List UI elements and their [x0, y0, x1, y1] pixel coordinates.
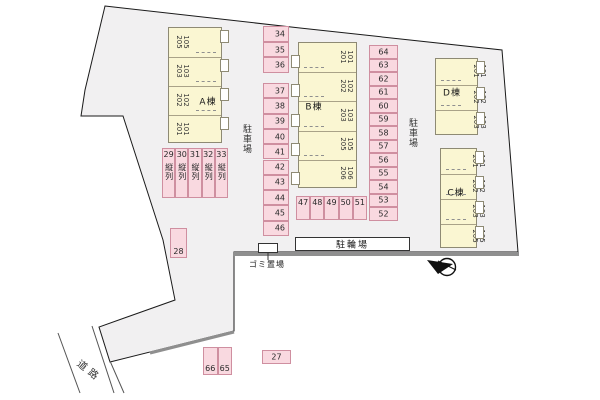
parking-stall-36: 36: [263, 57, 289, 73]
stair-dashes: [196, 52, 216, 53]
stall-number: 40: [275, 132, 285, 141]
tandem-parking-label: 縦列: [191, 163, 199, 181]
stall-number: 57: [378, 142, 388, 151]
balcony-notch: [291, 55, 300, 68]
stall-number: 46: [275, 224, 285, 233]
parking-stall-66: 66: [203, 347, 218, 375]
unit-number-lower: 106: [346, 165, 353, 181]
stall-number: 32: [203, 150, 213, 159]
unit-divider: [436, 110, 477, 111]
building-unit-number: 105205: [339, 136, 353, 152]
unit-divider: [169, 86, 221, 87]
building-name-b: B棟: [305, 100, 322, 113]
unit-number-lower: 105: [182, 34, 189, 50]
unit-number-lower: 102: [346, 78, 353, 94]
parking-stall-62: 62: [369, 72, 398, 86]
stall-number: 37: [275, 86, 285, 95]
parking-stall-40: 40: [263, 129, 289, 144]
building-unit-number: 102202: [175, 92, 189, 108]
unit-divider: [299, 160, 356, 161]
stall-number: 54: [378, 182, 388, 191]
balcony-notch: [220, 117, 229, 130]
parking-stall-59: 59: [369, 113, 398, 127]
balcony-notch: [220, 30, 229, 43]
unit-number-upper: 201: [175, 121, 182, 137]
balcony-notch: [475, 201, 484, 214]
stall-number: 50: [341, 198, 351, 207]
unit-number-upper: 205: [175, 34, 182, 50]
building-unit-number: 102202: [339, 78, 353, 94]
stall-number: 38: [275, 101, 285, 110]
parking-stall-50: 50: [339, 196, 353, 220]
tandem-parking-label: 縦列: [217, 163, 225, 181]
stair-dashes: [446, 219, 466, 220]
parking-stall-54: 54: [369, 180, 398, 194]
parking-stall-64: 64: [369, 45, 398, 59]
balcony-notch: [291, 143, 300, 156]
stair-dashes: [196, 110, 216, 111]
stall-number: 62: [378, 74, 388, 83]
tandem-parking-label: 縦列: [204, 163, 212, 181]
stall-number: 36: [275, 61, 285, 70]
stall-number: 43: [275, 178, 285, 187]
parking-stall-39: 39: [263, 114, 289, 129]
parking-stall-53: 53: [369, 194, 398, 208]
parking-stall-65: 65: [218, 347, 233, 375]
bicycle-parking-label: 駐輪場: [296, 238, 409, 251]
stall-number: 29: [164, 150, 174, 159]
stall-number: 59: [378, 115, 388, 124]
parking-stall-56: 56: [369, 153, 398, 167]
stall-number: 42: [275, 163, 285, 172]
unit-number-lower: 101: [182, 121, 189, 137]
bicycle-parking-area: 駐輪場: [295, 237, 410, 251]
stall-number: 65: [220, 364, 230, 373]
stall-number: 44: [275, 193, 285, 202]
unit-divider: [441, 224, 476, 225]
stall-number: 60: [378, 101, 388, 110]
parking-stall-46: 46: [263, 221, 289, 236]
stair-dashes: [304, 96, 324, 97]
garbage-area-box: [258, 243, 278, 253]
balcony-notch: [291, 114, 300, 127]
unit-divider: [441, 174, 476, 175]
parking-stall-58: 58: [369, 126, 398, 140]
parking-stall-35: 35: [263, 42, 289, 58]
building-unit-number: 101201: [175, 121, 189, 137]
building-name-c: C棟: [447, 186, 464, 199]
unit-number-upper: 202: [339, 78, 346, 94]
balcony-notch: [476, 87, 485, 100]
unit-number-upper: 206: [339, 165, 346, 181]
parking-stall-49: 49: [324, 196, 338, 220]
parking-stall-28: 28: [170, 228, 187, 258]
stall-number: 27: [271, 353, 281, 362]
north-arrow-icon: [427, 259, 456, 276]
parking-stall-61: 61: [369, 86, 398, 100]
balcony-notch: [476, 61, 485, 74]
stall-number: 55: [378, 169, 388, 178]
stall-number: 56: [378, 155, 388, 164]
stall-number: 64: [378, 47, 388, 56]
stall-number: 30: [177, 150, 187, 159]
parking-stall-60: 60: [369, 99, 398, 113]
stall-number: 48: [312, 198, 322, 207]
parking-stall-30: 30縦列: [175, 148, 188, 198]
building-unit-number: 105205: [175, 34, 189, 50]
building-name-a: A棟: [199, 95, 216, 108]
balcony-notch: [291, 84, 300, 97]
building-unit-number: 101201: [339, 49, 353, 65]
parking-stall-47: 47: [296, 196, 310, 220]
parking-stall-31: 31縦列: [188, 148, 201, 198]
unit-number-upper: 203: [339, 107, 346, 123]
unit-divider: [169, 115, 221, 116]
parking-stall-27: 27: [262, 350, 291, 364]
unit-number-upper: 203: [175, 63, 182, 79]
parking-stall-43: 43: [263, 175, 289, 190]
parking-stall-33: 33縦列: [215, 148, 228, 198]
parking-stall-41: 41: [263, 144, 289, 159]
building-name-d: D棟: [443, 86, 461, 99]
stall-number: 61: [378, 88, 388, 97]
stair-dashes: [304, 126, 324, 127]
stair-dashes: [304, 155, 324, 156]
balcony-notch: [220, 88, 229, 101]
stall-number: 31: [190, 150, 200, 159]
balcony-notch: [220, 59, 229, 72]
parking-stall-45: 45: [263, 205, 289, 220]
stall-number: 28: [173, 247, 183, 256]
building-unit-number: 103203: [339, 107, 353, 123]
unit-number-lower: 103: [346, 107, 353, 123]
unit-number-lower: 101: [346, 49, 353, 65]
unit-divider: [299, 131, 356, 132]
stall-number: 35: [275, 45, 285, 54]
stall-number: 49: [326, 198, 336, 207]
unit-number-upper: 202: [175, 92, 182, 108]
parking-stall-37: 37: [263, 83, 289, 98]
stair-dashes: [304, 67, 324, 68]
parking-stall-52: 52: [369, 207, 398, 221]
parking-stall-63: 63: [369, 59, 398, 73]
parking-stall-42: 42: [263, 160, 289, 175]
stall-number: 33: [216, 150, 226, 159]
stall-number: 45: [275, 209, 285, 218]
stall-number: 41: [275, 147, 285, 156]
tandem-parking-label: 縦列: [178, 163, 186, 181]
garbage-area-label: ゴミ置場: [249, 259, 285, 270]
parking-stall-44: 44: [263, 190, 289, 205]
parking-stall-57: 57: [369, 140, 398, 154]
balcony-notch: [475, 151, 484, 164]
unit-divider: [441, 199, 476, 200]
balcony-notch: [476, 112, 485, 125]
balcony-notch: [291, 172, 300, 185]
stair-dashes: [446, 169, 466, 170]
parking-stall-32: 32縦列: [202, 148, 215, 198]
building-unit-number: 103203: [175, 63, 189, 79]
unit-number-upper: 201: [339, 49, 346, 65]
stall-number: 53: [378, 196, 388, 205]
stair-dashes: [441, 105, 461, 106]
stall-number: 51: [355, 198, 365, 207]
parking-stall-48: 48: [310, 196, 324, 220]
building-unit-number: 106206: [339, 165, 353, 181]
parking-stall-55: 55: [369, 167, 398, 181]
stall-number: 58: [378, 128, 388, 137]
balcony-notch: [475, 226, 484, 239]
tandem-parking-label: 縦列: [165, 163, 173, 181]
parking-lot-label-east: 駐車場: [406, 118, 419, 148]
stair-dashes: [441, 80, 461, 81]
stall-number: 39: [275, 117, 285, 126]
parking-stall-51: 51: [353, 196, 367, 220]
balcony-notch: [475, 176, 484, 189]
stall-number: 52: [378, 209, 388, 218]
stall-number: 63: [378, 61, 388, 70]
unit-divider: [169, 57, 221, 58]
parking-stall-38: 38: [263, 98, 289, 113]
stall-number: 34: [275, 29, 285, 38]
parking-stall-34: 34: [263, 26, 289, 42]
unit-divider: [299, 72, 356, 73]
unit-number-lower: 105: [346, 136, 353, 152]
site-plan: 105205103203102202101201A棟10120110220210…: [0, 0, 600, 400]
unit-number-upper: 205: [339, 136, 346, 152]
unit-number-lower: 102: [182, 92, 189, 108]
stall-number: 66: [205, 364, 215, 373]
stall-number: 47: [298, 198, 308, 207]
unit-number-lower: 103: [182, 63, 189, 79]
stair-dashes: [196, 81, 216, 82]
parking-stall-29: 29縦列: [162, 148, 175, 198]
parking-lot-label-west: 駐車場: [240, 124, 253, 154]
